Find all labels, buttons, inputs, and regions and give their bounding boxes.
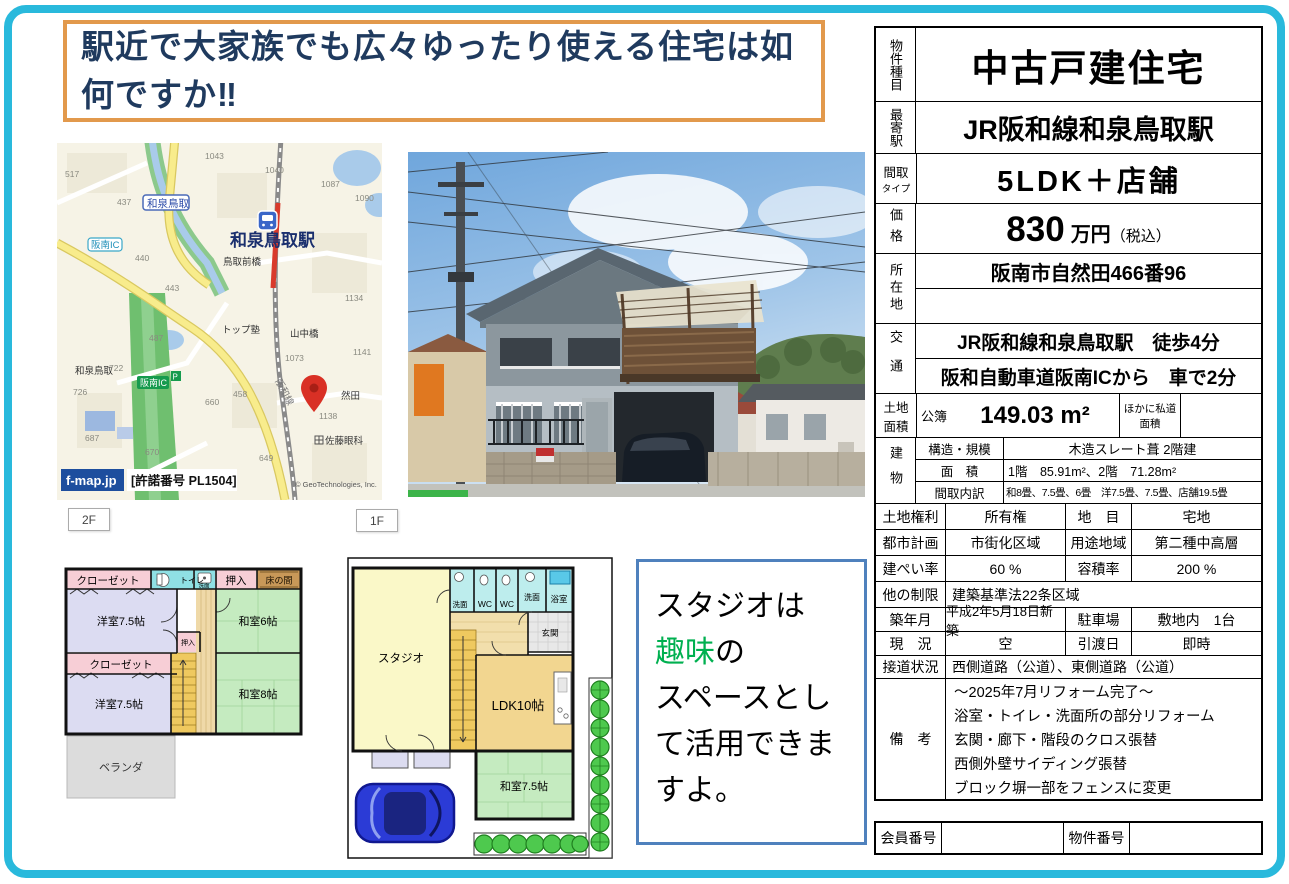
svg-text:726: 726 xyxy=(73,387,87,397)
plan1f-bathtub xyxy=(550,571,570,584)
plan1f-porch2 xyxy=(414,752,450,768)
row-coverage-ratio: 建ぺい率 60 % 容積率 200 % xyxy=(876,556,1261,582)
map-label-clinic: 佐藤眼科 xyxy=(325,435,364,447)
building-structure-value: 木造スレート葺 2階建 xyxy=(1004,438,1261,459)
svg-text:WC: WC xyxy=(478,599,492,609)
svg-text:洋室7.5帖: 洋室7.5帖 xyxy=(95,697,143,711)
studio-note-line3: スペースとして活用できますよ。 xyxy=(655,676,856,814)
svg-text:1073: 1073 xyxy=(285,353,304,363)
building-layout-label: 間取内訳 xyxy=(916,482,1004,503)
price-number: 830 xyxy=(1006,210,1064,250)
property-table: 物件種目 中古戸建住宅 最寄駅 JR阪和線和泉鳥取駅 間取タイプ 5LDK＋店舗… xyxy=(874,26,1263,801)
map-copyright: © GeoTechnologies, Inc. xyxy=(295,480,377,489)
svg-text:洗面: 洗面 xyxy=(198,582,210,590)
row-current-status: 現 況 空 引渡日 即時 xyxy=(876,632,1261,656)
svg-text:浴室: 浴室 xyxy=(550,594,568,604)
property-type-value: 中古戸建住宅 xyxy=(916,28,1261,101)
building-area-label: 面 積 xyxy=(916,460,1004,481)
svg-text:押入: 押入 xyxy=(181,638,195,647)
svg-text:440: 440 xyxy=(135,253,149,263)
svg-text:洗面: 洗面 xyxy=(524,592,540,602)
svg-text:1134: 1134 xyxy=(345,293,364,303)
headline-box: 駅近で大家族でも広々ゆったり使える住宅は如何ですか‼ xyxy=(63,20,825,122)
price-unit: 万円 xyxy=(1071,218,1111,247)
row-label: 最寄駅 xyxy=(876,102,916,153)
photo-left-neighbor xyxy=(408,334,488,482)
plan1f-porch1 xyxy=(372,752,408,768)
land-area-note-value xyxy=(1181,394,1261,437)
row-price: 価格 830 万円 （税込） xyxy=(876,204,1261,254)
svg-text:660: 660 xyxy=(205,397,219,407)
remark-line: ～2025年7月リフォーム完了～ xyxy=(946,679,1261,703)
map-label-yamanaka: 山中橋 xyxy=(290,328,319,340)
studio-note-line1: スタジオは xyxy=(655,584,856,630)
svg-text:洋室7.5帖: 洋室7.5帖 xyxy=(97,614,145,628)
svg-text:1090: 1090 xyxy=(355,193,374,203)
plan1f-car xyxy=(356,784,454,842)
svg-text:687: 687 xyxy=(85,433,99,443)
row-member-number: 会員番号 物件番号 xyxy=(876,823,1261,853)
svg-text:押入: 押入 xyxy=(226,574,247,587)
svg-text:1040: 1040 xyxy=(265,165,284,175)
nearest-station-value: JR阪和線和泉鳥取駅 xyxy=(916,102,1261,153)
svg-text:1141: 1141 xyxy=(353,347,372,357)
transport-line1: JR阪和線和泉鳥取駅 徒歩4分 xyxy=(916,324,1261,359)
svg-text:1138: 1138 xyxy=(319,411,338,421)
svg-text:和泉鳥取: 和泉鳥取 xyxy=(147,197,189,210)
row-label: 所在地 xyxy=(876,254,916,323)
row-label: 間取タイプ xyxy=(876,154,917,203)
property-number-value xyxy=(1130,823,1261,853)
flyer-page: 駅近で大家族でも広々ゆったり使える住宅は如何ですか‼ xyxy=(0,0,1289,884)
plan2f-stairs xyxy=(171,653,196,734)
price-tax-note: （税込） xyxy=(1111,225,1171,246)
floorplan-1f: スタジオ 洗面 WC WC 洗面 浴室 玄関 LDK10帖 和室7.5帖 xyxy=(346,550,632,874)
map-license: [許諾番号 PL1504] xyxy=(131,473,237,488)
land-area-register: 公簿 xyxy=(917,394,951,437)
row-road-access: 接道状況 西側道路（公道）、東側道路（公道） xyxy=(876,656,1261,679)
studio-note: スタジオは 趣味の スペースとして活用できますよ。 xyxy=(636,559,867,845)
svg-text:f-map.jp: f-map.jp xyxy=(66,473,117,488)
row-label: 交通 xyxy=(876,324,916,393)
row-transport: 交通 JR阪和線和泉鳥取駅 徒歩4分 阪和自動車道阪南ICから 車で2分 xyxy=(876,324,1261,394)
svg-text:517: 517 xyxy=(65,169,79,179)
address-value: 阪南市自然田466番96 xyxy=(916,254,1261,289)
svg-text:阪南IC: 阪南IC xyxy=(140,377,168,388)
route-map: 和泉鳥取駅 和泉鳥取 阪南IC 阪南IC P 鳥取前橋 トップ塾 xyxy=(57,143,382,500)
building-area-value: 1階 85.91m²、2階 71.28m² xyxy=(1004,460,1261,481)
row-label: 物件種目 xyxy=(876,28,916,101)
svg-text:1087: 1087 xyxy=(321,179,340,189)
floorplan-2f: ベランダ xyxy=(64,566,312,838)
map-label-juku: トップ塾 xyxy=(222,324,261,336)
row-label: 価格 xyxy=(876,204,916,253)
map-label-izumitottori2: 和泉鳥取 xyxy=(75,365,114,377)
studio-note-line2: の xyxy=(715,636,745,669)
svg-text:458: 458 xyxy=(233,389,247,399)
transport-line2: 阪和自動車道阪南ICから 車で2分 xyxy=(916,359,1261,393)
row-address: 所在地 阪南市自然田466番96 xyxy=(876,254,1261,324)
floor-label-2f: 2F xyxy=(68,508,110,531)
row-land-rights: 土地権利 所有権 地 目 宅地 xyxy=(876,504,1261,530)
svg-text:クローゼット: クローゼット xyxy=(77,575,140,587)
remark-line: 浴室・トイレ・洗面所の部分リフォーム xyxy=(946,703,1261,727)
svg-text:阪南IC: 阪南IC xyxy=(91,239,120,251)
svg-text:443: 443 xyxy=(165,283,179,293)
svg-text:スタジオ: スタジオ xyxy=(378,652,424,665)
building-layout-value: 和8畳、7.5畳、6畳 洋7.5畳、7.5畳、店舗19.5畳 xyxy=(1004,482,1261,503)
svg-text:和室7.5帖: 和室7.5帖 xyxy=(500,779,548,793)
svg-text:LDK10帖: LDK10帖 xyxy=(492,698,545,713)
svg-text:洗面: 洗面 xyxy=(453,599,468,609)
row-land-area: 土地面積 公簿 149.03 m² ほかに私道面積 xyxy=(876,394,1261,438)
row-remarks: 備 考 ～2025年7月リフォーム完了～ 浴室・トイレ・洗面所の部分リフォーム … xyxy=(876,679,1261,799)
member-number-value xyxy=(942,823,1064,853)
land-area-note: ほかに私道面積 xyxy=(1119,394,1181,437)
svg-text:487: 487 xyxy=(149,333,163,343)
train-station-icon xyxy=(258,211,277,230)
row-property-type: 物件種目 中古戸建住宅 xyxy=(876,28,1261,102)
house-photo xyxy=(408,152,865,497)
floor-label-1f: 1F xyxy=(356,509,398,532)
layout-type-value: 5LDK＋店舗 xyxy=(917,154,1261,203)
row-layout-type: 間取タイプ 5LDK＋店舗 xyxy=(876,154,1261,204)
map-label-bridge: 鳥取前橋 xyxy=(223,256,262,268)
photo-car xyxy=(622,432,706,482)
row-nearest-station: 最寄駅 JR阪和線和泉鳥取駅 xyxy=(876,102,1261,154)
plan1f-kitchen xyxy=(554,672,571,724)
remark-line: 西側外壁サイディング張替 xyxy=(946,751,1261,775)
svg-text:和室8帖: 和室8帖 xyxy=(238,687,277,701)
row-label: 土地面積 xyxy=(876,394,917,437)
svg-text:クローゼット: クローゼット xyxy=(90,659,153,671)
headline-text: 駅近で大家族でも広々ゆったり使える住宅は如何ですか‼ xyxy=(81,23,807,119)
plan1f-stairs xyxy=(450,630,476,751)
price-value: 830 万円 （税込） xyxy=(916,204,1261,253)
svg-text:床の間: 床の間 xyxy=(265,575,292,586)
svg-text:1043: 1043 xyxy=(205,151,224,161)
svg-text:WC: WC xyxy=(500,599,514,609)
remark-line: 玄関・廊下・階段のクロス張替 xyxy=(946,727,1261,751)
studio-note-highlight: 趣味 xyxy=(655,636,715,669)
address-value2 xyxy=(916,289,1261,323)
map-road-sign-izumitottori: 和泉鳥取 xyxy=(143,195,189,210)
svg-text:玄関: 玄関 xyxy=(541,628,558,638)
row-city-planning: 都市計画 市街化区域 用途地域 第二種中高層 xyxy=(876,530,1261,556)
svg-text:P: P xyxy=(173,373,178,382)
building-structure-label: 構造・規模 xyxy=(916,438,1004,459)
svg-text:ベランダ: ベランダ xyxy=(99,760,143,774)
row-building: 建物 構造・規模 木造スレート葺 2階建 面 積 1階 85.91m²、2階 7… xyxy=(876,438,1261,504)
plan2f-toilet-icon xyxy=(157,574,169,587)
map-label-zenda: 然田 xyxy=(341,390,360,402)
svg-text:和室6帖: 和室6帖 xyxy=(238,614,277,628)
svg-text:722: 722 xyxy=(109,363,123,373)
map-station-label: 和泉鳥取駅 xyxy=(230,230,316,250)
plan1f-hedge-right xyxy=(589,678,612,858)
id-number-table: 会員番号 物件番号 xyxy=(874,821,1263,855)
svg-text:649: 649 xyxy=(259,453,273,463)
row-label: 建物 xyxy=(876,438,916,503)
plan1f-hedge-bottom xyxy=(474,833,588,855)
map-road-sign-hannan-ic: 阪南IC xyxy=(88,238,122,251)
remark-line: ブロック塀一部をフェンスに変更 xyxy=(946,775,1261,799)
land-area-value: 149.03 m² xyxy=(951,394,1119,437)
row-other-restrictions: 他の制限 建築基準法22条区域 xyxy=(876,582,1261,608)
svg-text:670: 670 xyxy=(145,447,159,457)
svg-text:437: 437 xyxy=(117,197,131,207)
row-built-date: 築年月 平成2年5月18日新築 駐車場 敷地内 1台 xyxy=(876,608,1261,632)
